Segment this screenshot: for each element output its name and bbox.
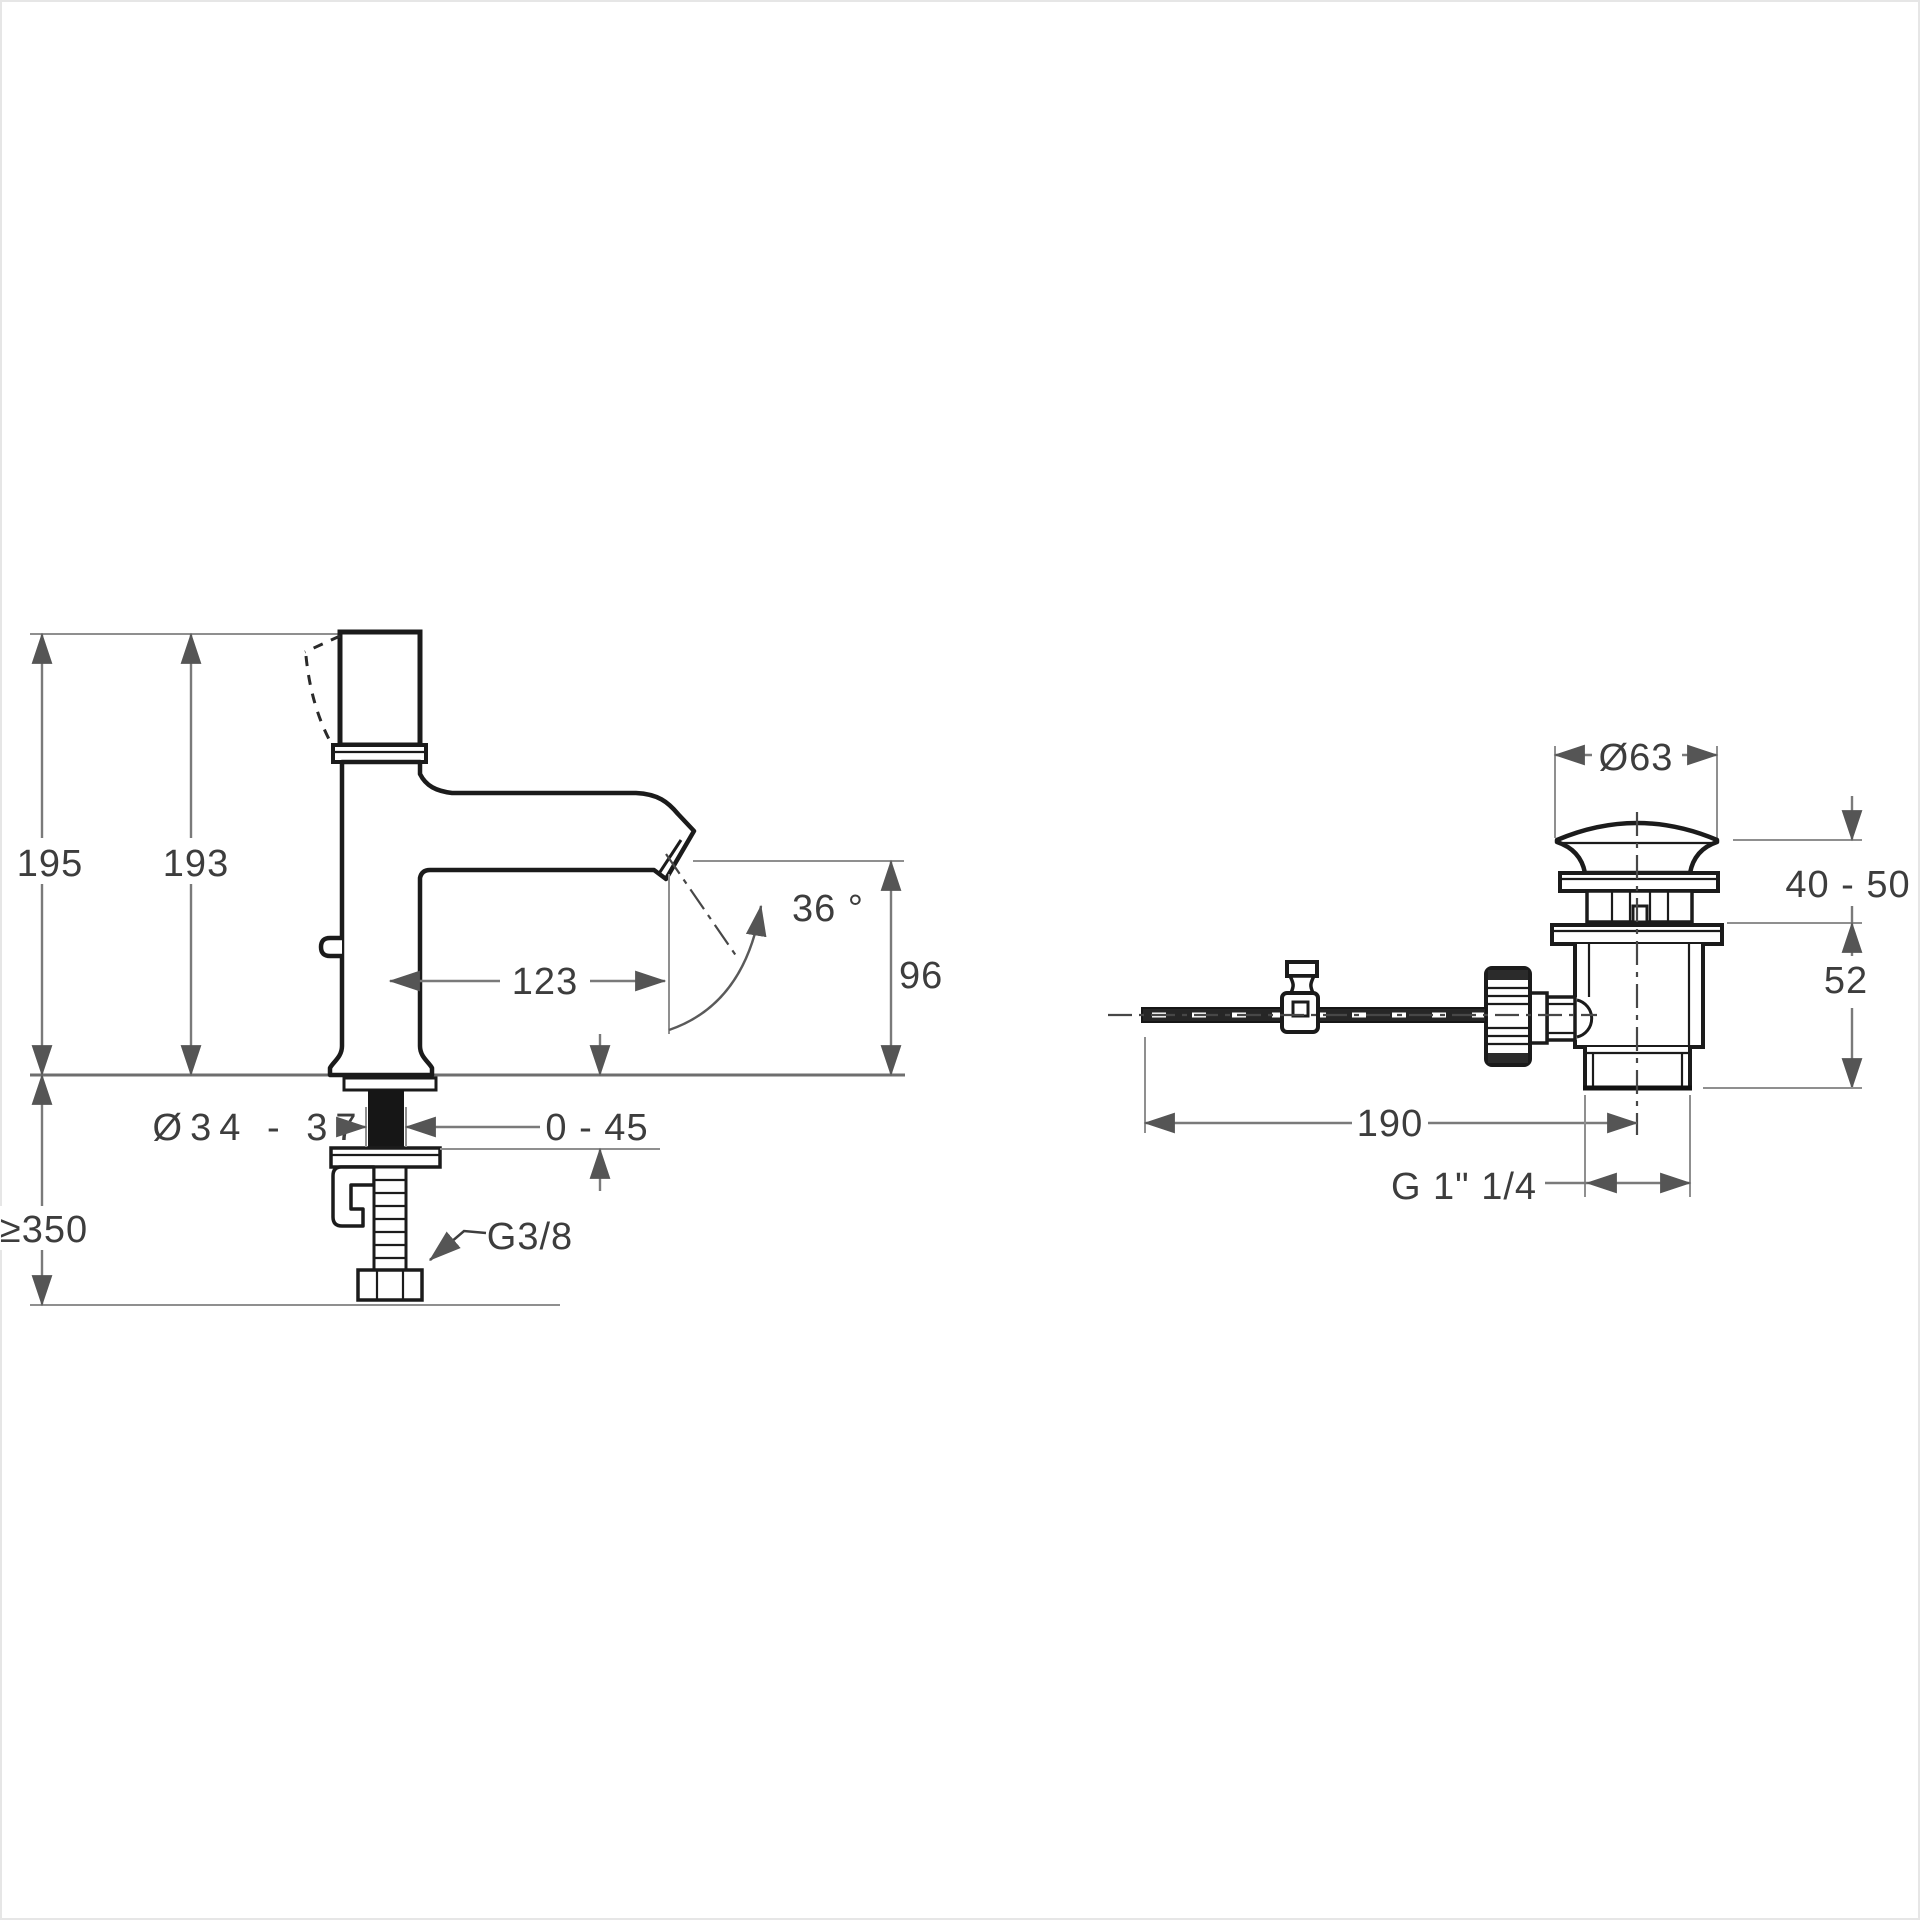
label-body-height: 52	[1824, 960, 1868, 1002]
right-view-waste: Ø63	[1108, 734, 1911, 1208]
label-mounting-hole: Ø34 - 37	[153, 1107, 358, 1149]
rod-nut-collar	[1530, 993, 1547, 1043]
label-basin-thickness: 40 - 50	[1785, 864, 1910, 906]
label-spout-reach: 123	[512, 961, 578, 1003]
faucet-body-and-spout	[330, 762, 694, 1075]
rod-clamp	[1282, 962, 1318, 1032]
dimension-clearance-below: ≥350	[0, 1075, 92, 1305]
left-view-faucet: 195 193 ≥350 36 °	[0, 632, 943, 1305]
handle-tilted-dashed-top	[305, 636, 340, 652]
label-supply-thread: G3/8	[487, 1216, 573, 1258]
base-gasket	[344, 1078, 436, 1090]
label-waste-thread: G 1" 1/4	[1391, 1166, 1537, 1208]
waste-body	[1575, 944, 1703, 1047]
dimension-deck-thickness: 0 - 45	[440, 1034, 660, 1191]
supply-thread-leader	[430, 1231, 486, 1260]
knurled-nut	[1486, 968, 1530, 1065]
dimension-height-total: 195	[16, 634, 83, 1075]
plug-flange	[1560, 873, 1718, 891]
handle-collar	[333, 745, 426, 762]
label-spout-height: 96	[899, 955, 943, 997]
popup-rod-knob	[321, 938, 342, 956]
supply-hex-nut	[358, 1270, 422, 1300]
supply-thread-callout: G3/8	[430, 1216, 573, 1260]
strainer-slots	[1587, 891, 1692, 922]
label-clearance-below: ≥350	[0, 1209, 88, 1251]
dimension-basin-thickness: 40 - 50	[1727, 796, 1911, 923]
dimension-height-spout: 193	[162, 634, 229, 1075]
label-spout-angle: 36 °	[792, 888, 864, 930]
faucet-dimension-diagram: 195 193 ≥350 36 °	[0, 0, 1920, 1920]
technical-drawing-sheet: 195 193 ≥350 36 °	[0, 0, 1920, 1920]
dimension-rod-length: 190	[1145, 1037, 1637, 1145]
dimension-mounting-hole: Ø34 - 37	[153, 1107, 541, 1149]
handle-tilted-dashed-arc	[306, 656, 331, 743]
angle-arc	[669, 906, 761, 1030]
dimension-spout-reach: 123	[390, 958, 665, 1003]
dimension-waste-thread: G 1" 1/4	[1391, 1095, 1690, 1208]
outlet-angle-centerline	[666, 854, 739, 960]
label-deck-thickness: 0 - 45	[545, 1107, 648, 1149]
label-flange-diameter: Ø63	[1599, 737, 1674, 779]
mounting-plate	[331, 1148, 440, 1167]
threaded-shank	[368, 1090, 404, 1148]
handle	[340, 632, 420, 745]
label-height-spout: 193	[163, 843, 229, 885]
label-height-total: 195	[17, 843, 83, 885]
label-rod-length: 190	[1357, 1103, 1423, 1145]
mounting-bracket	[333, 1167, 374, 1226]
dimension-body-height: 52	[1703, 923, 1868, 1088]
